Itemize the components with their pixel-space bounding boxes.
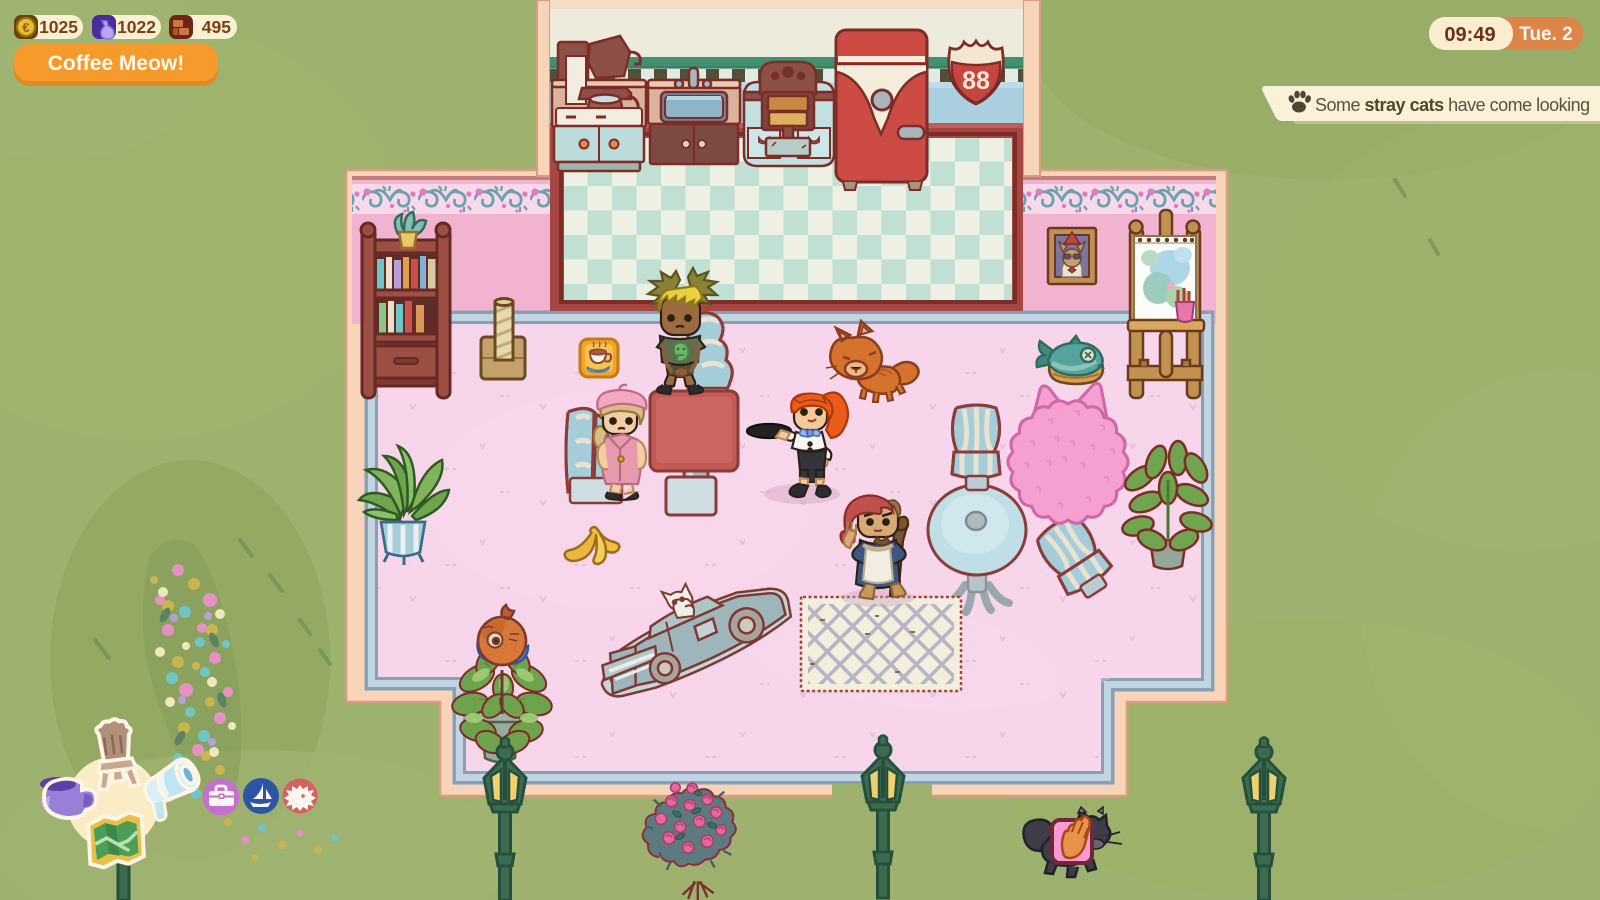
- svg-text:88: 88: [962, 67, 990, 95]
- svg-text:495: 495: [202, 17, 231, 37]
- svg-text:Tue. 2: Tue. 2: [1519, 24, 1573, 45]
- svg-text:1022: 1022: [117, 17, 156, 37]
- svg-text:09:49: 09:49: [1444, 24, 1495, 46]
- svg-text:Coffee Meow!: Coffee Meow!: [48, 52, 185, 75]
- svg-text:€: €: [22, 20, 29, 35]
- svg-text:1025: 1025: [39, 17, 78, 37]
- svg-text:Some stray cats have come look: Some stray cats have come looking: [1315, 95, 1590, 115]
